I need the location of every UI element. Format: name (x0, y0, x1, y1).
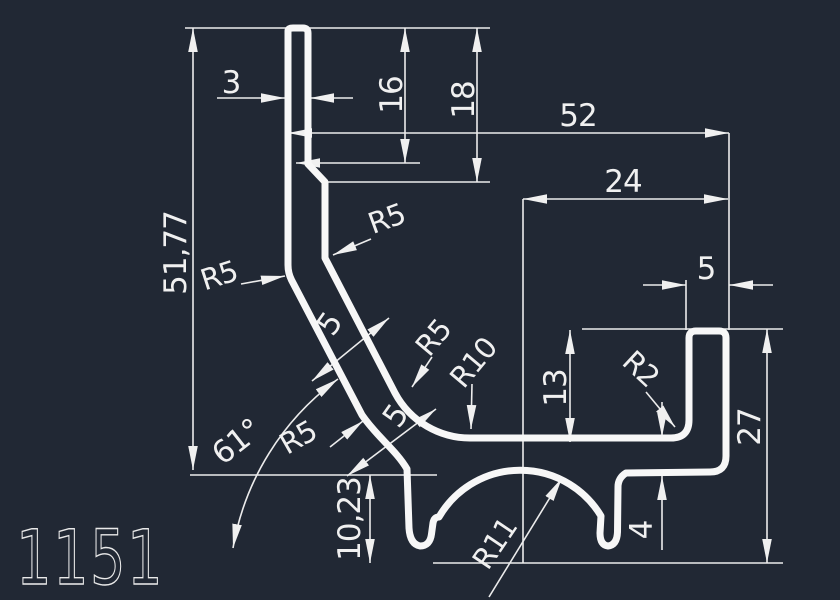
dim-1023-label[interactable]: 10,23 (332, 477, 368, 561)
dim-18-label[interactable]: 18 (446, 81, 482, 118)
dim-52-label[interactable]: 52 (559, 98, 596, 134)
dim-27-label[interactable]: 27 (732, 408, 768, 445)
dim-13-label[interactable]: 13 (538, 369, 574, 406)
dim-5-label[interactable]: 5 (697, 251, 716, 287)
dim-5177-label[interactable]: 51,77 (158, 211, 194, 295)
cad-viewport: 3 16 18 52 24 5 51,77 13 27 (0, 0, 840, 600)
dim-10-23[interactable]: 10,23 (332, 475, 370, 563)
part-number: 1151 (16, 513, 164, 600)
dim-24-label[interactable]: 24 (604, 164, 641, 200)
dim-4-label[interactable]: 4 (624, 521, 660, 540)
drawing-canvas[interactable]: 3 16 18 52 24 5 51,77 13 27 (0, 0, 840, 600)
canvas-background[interactable] (0, 0, 840, 600)
dim-3-label[interactable]: 3 (222, 65, 241, 101)
dim-16-label[interactable]: 16 (374, 76, 410, 113)
